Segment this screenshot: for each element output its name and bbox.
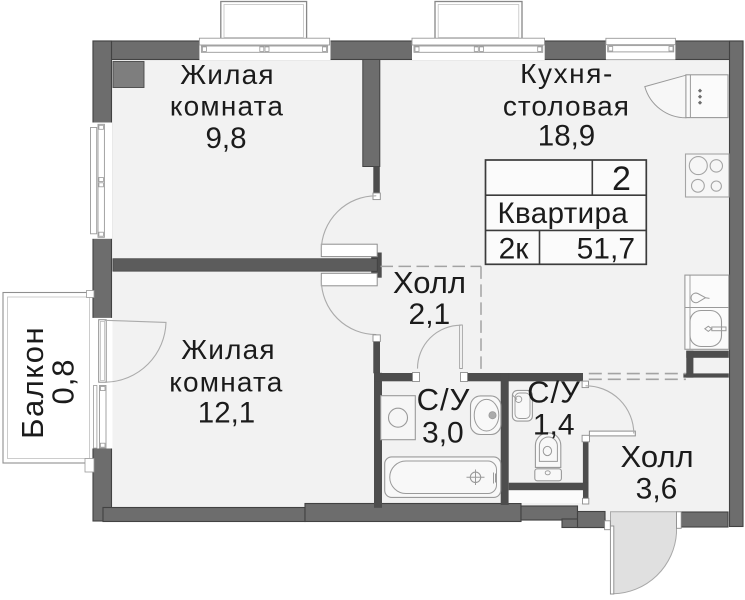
svg-text:С/У: С/У xyxy=(527,375,581,410)
svg-text:Холл: Холл xyxy=(621,439,694,474)
svg-text:Кухня-: Кухня- xyxy=(520,58,614,89)
svg-text:1,4: 1,4 xyxy=(533,409,575,442)
svg-text:Квартира: Квартира xyxy=(497,197,628,230)
svg-text:12,1: 12,1 xyxy=(198,397,255,430)
svg-text:Холл: Холл xyxy=(393,265,466,300)
svg-text:51,7: 51,7 xyxy=(577,232,635,265)
svg-text:18,9: 18,9 xyxy=(538,120,595,153)
svg-text:2к: 2к xyxy=(499,232,530,265)
svg-text:9,8: 9,8 xyxy=(205,122,246,155)
svg-text:3,0: 3,0 xyxy=(422,416,464,449)
svg-text:С/У: С/У xyxy=(417,382,471,417)
svg-text:3,6: 3,6 xyxy=(636,472,678,505)
svg-text:2,1: 2,1 xyxy=(409,298,451,331)
svg-text:0,8: 0,8 xyxy=(46,358,81,404)
svg-text:столовая: столовая xyxy=(503,90,630,121)
svg-text:Жилая: Жилая xyxy=(180,59,275,90)
svg-text:комната: комната xyxy=(169,366,283,397)
svg-text:2: 2 xyxy=(612,160,631,198)
svg-text:Жилая: Жилая xyxy=(181,334,276,365)
svg-text:комната: комната xyxy=(170,91,284,122)
